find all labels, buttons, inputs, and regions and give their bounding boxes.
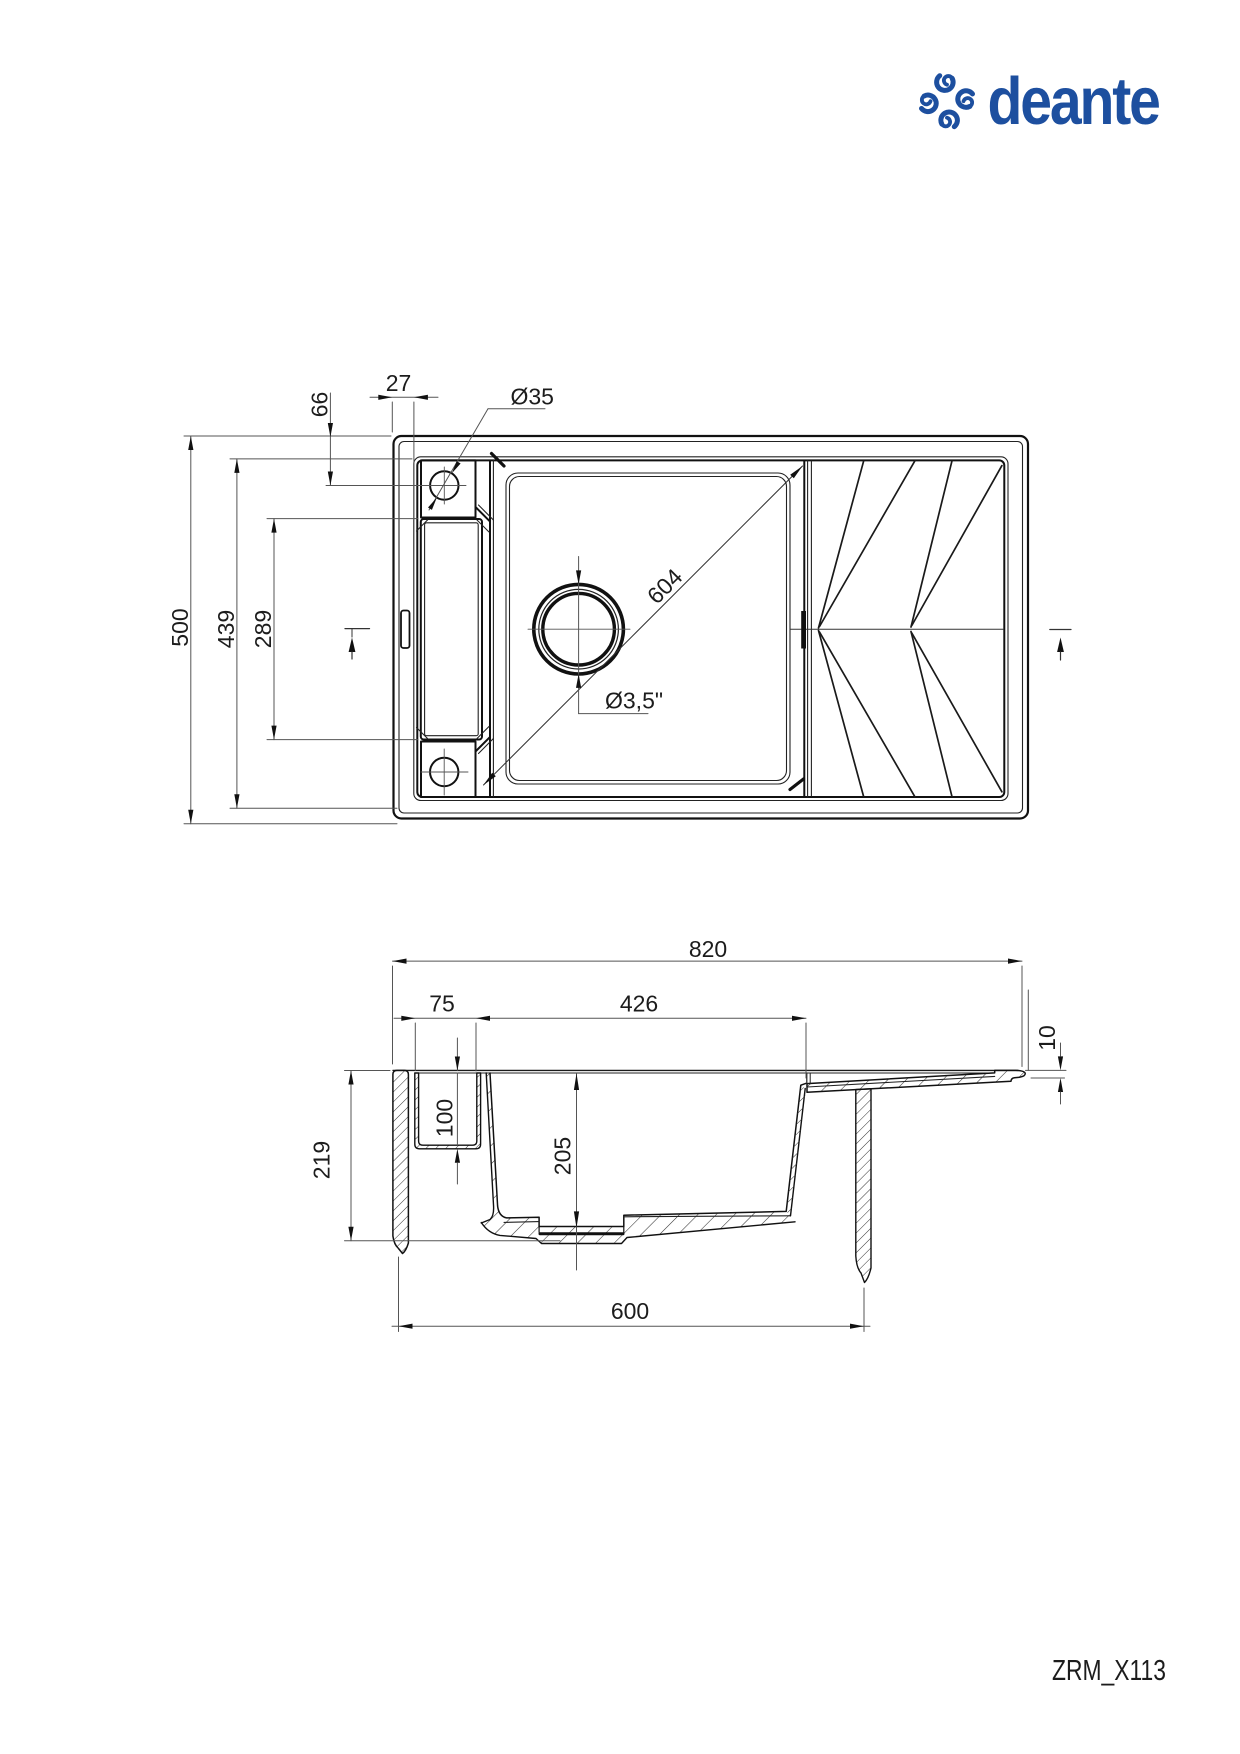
svg-text:Ø35: Ø35 [511,384,554,410]
svg-text:66: 66 [306,392,332,418]
svg-text:100: 100 [432,1099,458,1137]
svg-text:439: 439 [213,610,239,648]
svg-text:10: 10 [1034,1025,1060,1051]
svg-text:205: 205 [550,1137,576,1175]
svg-text:75: 75 [429,991,455,1017]
svg-text:289: 289 [250,610,276,648]
svg-text:219: 219 [309,1141,335,1179]
svg-text:604: 604 [642,563,688,609]
svg-text:820: 820 [689,936,727,962]
svg-text:deante: deante [988,65,1160,139]
svg-text:27: 27 [386,370,412,396]
svg-text:500: 500 [167,608,193,646]
svg-text:ZRM_X113: ZRM_X113 [1052,1655,1166,1687]
svg-text:Ø3,5": Ø3,5" [605,688,663,714]
svg-text:426: 426 [620,991,658,1017]
svg-text:600: 600 [611,1298,649,1324]
